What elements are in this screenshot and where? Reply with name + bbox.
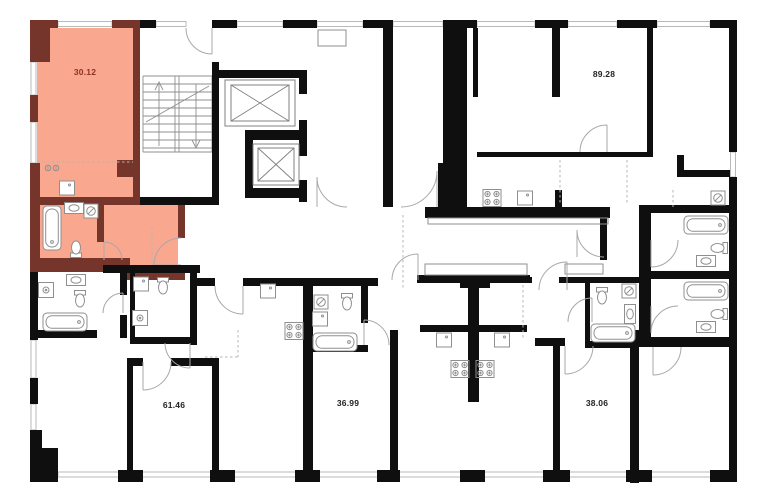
toilet-icon: [711, 309, 728, 320]
unit-area-label-38-06: 38.06: [586, 398, 608, 408]
toilet-icon: [75, 291, 86, 308]
toilet-icon: [711, 243, 728, 254]
unit-area-label-30-12: 30.12: [74, 67, 96, 77]
unit-area-label-61-46: 61.46: [163, 400, 185, 410]
vanity-sink-icon: [697, 256, 716, 267]
shower-icon: [39, 283, 54, 298]
kitchen-sink-icon: [60, 181, 75, 195]
toilet-icon: [597, 288, 608, 305]
vanity-sink-icon: [697, 322, 716, 333]
elevator-icon: [225, 80, 295, 126]
bathtub-icon: [43, 313, 87, 331]
kitchen-sink-icon: [134, 277, 149, 291]
unit-area-label-36-99: 36.99: [337, 398, 359, 408]
shower-icon: [133, 311, 148, 326]
washing-machine-icon: [711, 191, 725, 205]
vanity-sink-icon: [65, 203, 84, 214]
toilet-icon: [71, 241, 82, 258]
unit-area-label-89-28: 89.28: [593, 69, 615, 79]
toilet-icon: [342, 294, 353, 311]
bathtub-icon: [43, 206, 61, 250]
kitchen-sink-icon: [437, 333, 452, 347]
washing-machine-icon: [314, 295, 328, 309]
bathtub-icon: [313, 333, 357, 351]
kitchen-sink-icon: [313, 312, 328, 326]
washing-machine-icon: [622, 284, 636, 298]
vanity-sink-icon: [67, 275, 86, 286]
bathtub-icon: [684, 282, 728, 300]
floor-plan-svg: 30.12: [0, 0, 770, 500]
toilet-icon: [158, 278, 169, 295]
kitchen-sink-icon: [495, 333, 510, 347]
vanity-sink-icon: [625, 305, 636, 324]
kitchen-sink-icon: [518, 191, 533, 205]
bathtub-icon: [591, 324, 635, 342]
washing-machine-icon: [84, 204, 98, 218]
floor-plan-canvas: 30.12: [0, 0, 770, 500]
kitchen-sink-icon: [261, 284, 276, 298]
bathtub-icon: [684, 216, 728, 234]
elevator-icon: [253, 144, 299, 185]
